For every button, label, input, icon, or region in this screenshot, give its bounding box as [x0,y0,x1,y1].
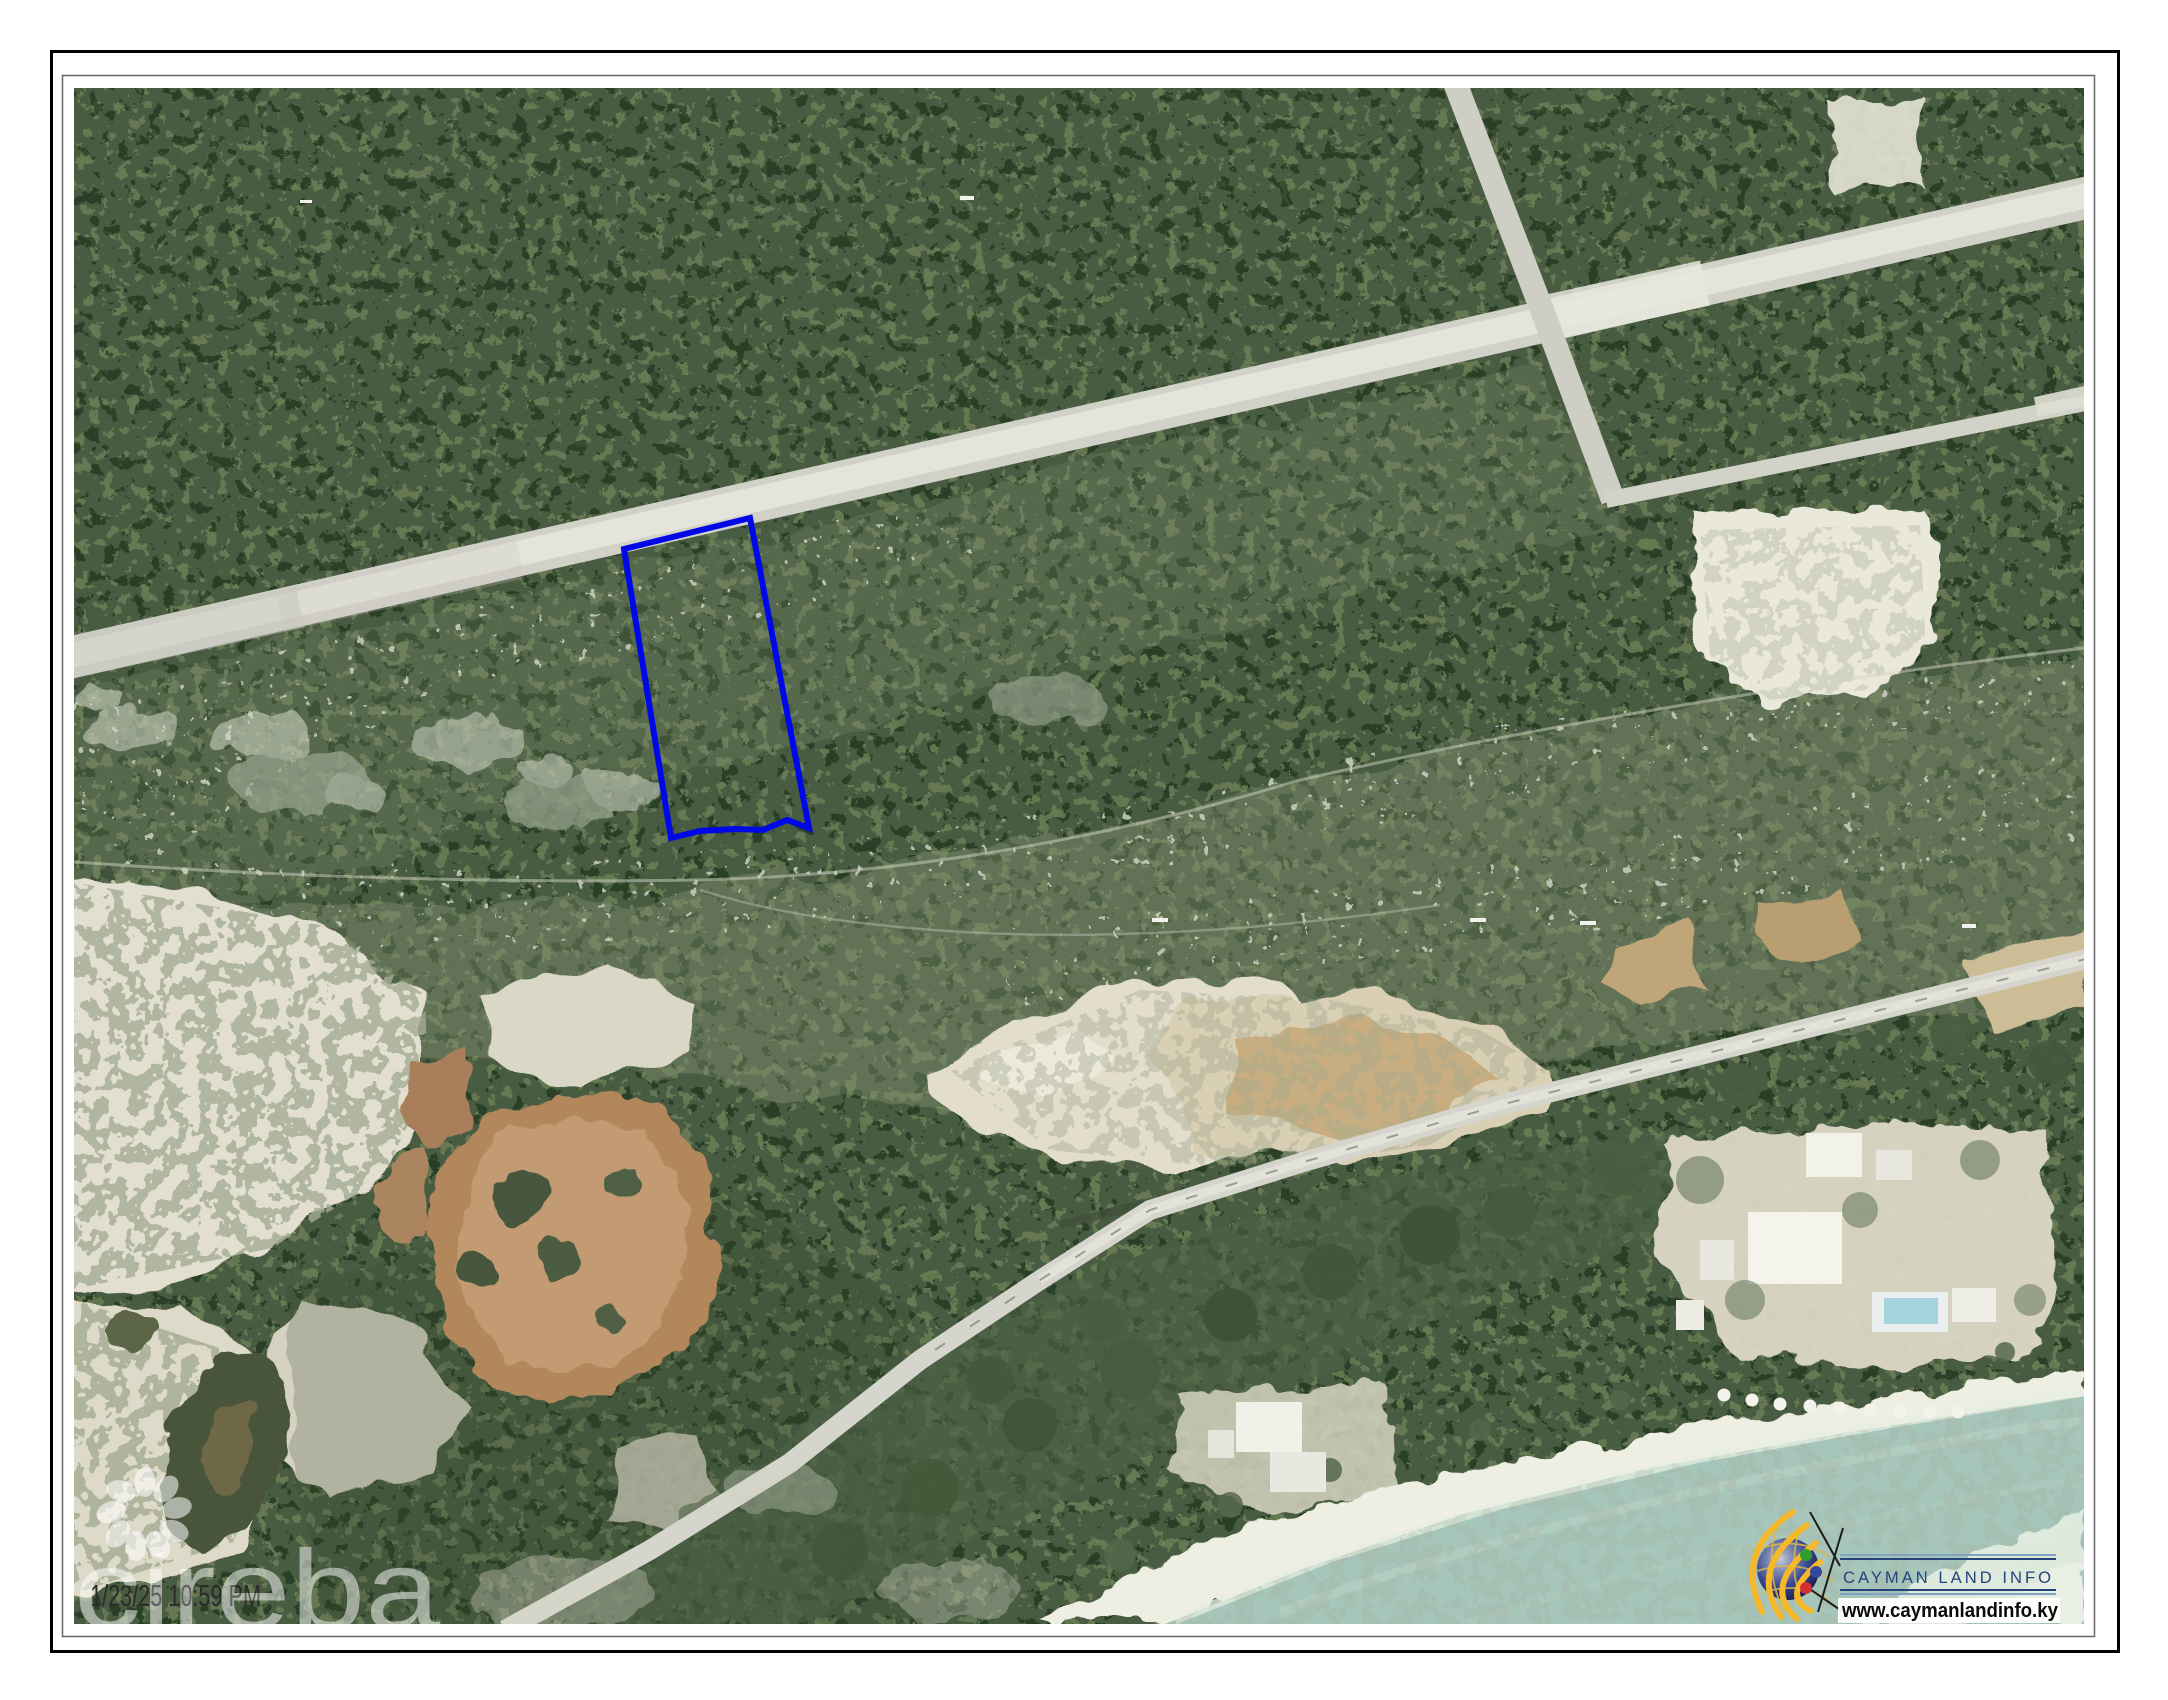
svg-text:www.caymanlandinfo.ky: www.caymanlandinfo.ky [1841,1600,2059,1622]
svg-text:1/23/25 10:59 PM: 1/23/25 10:59 PM [90,1578,261,1613]
svg-text:CAYMAN LAND INFO: CAYMAN LAND INFO [1843,1569,2054,1587]
